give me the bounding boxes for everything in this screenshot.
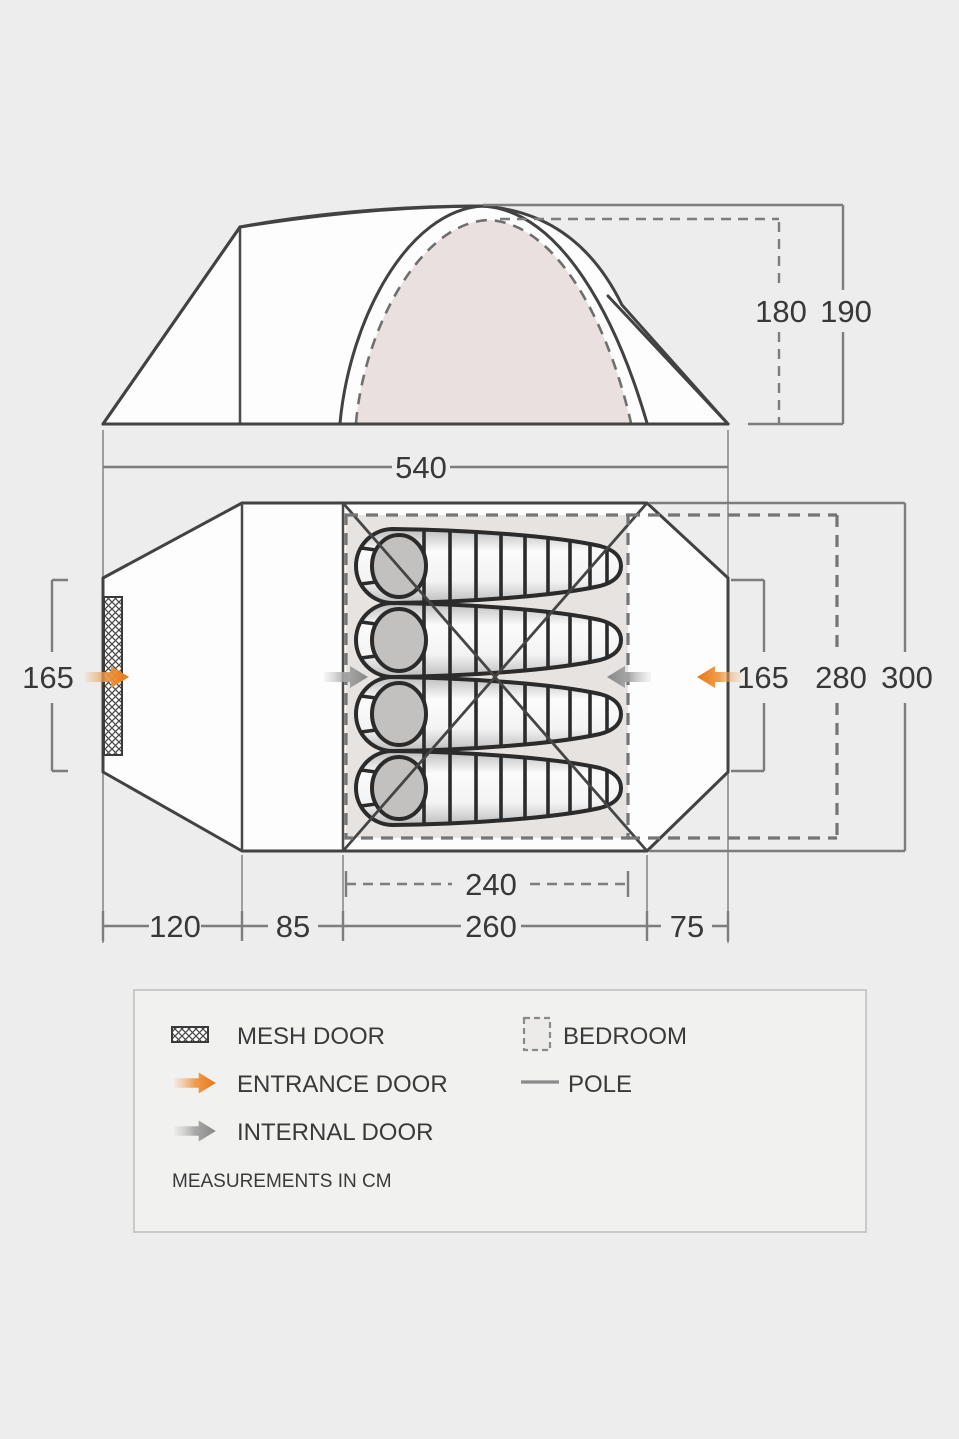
dim-label-outer-height: 190 [820,294,872,329]
legend-bedroom-label: BEDROOM [563,1023,687,1050]
floor-plan: 165 165 280 300 240 120 85 260 75 [22,503,933,944]
dim-label-inner-height: 180 [755,294,807,329]
dim-label-total-length: 540 [395,450,447,485]
mesh-door-icon [172,1027,208,1042]
legend-entrance-door-label: ENTRANCE DOOR [237,1071,448,1098]
tent-dimensions-diagram: 180 190 540 [0,0,959,1439]
dim-label-inner-length: 260 [465,909,517,944]
bedroom-length-dimension: 240 [346,867,628,902]
bottom-dimension-line: 120 85 260 75 [103,909,728,944]
dim-label-bedroom-length: 240 [465,867,517,902]
legend-mesh-door-label: MESH DOOR [237,1023,385,1050]
legend-internal-door-label: INTERNAL DOOR [237,1119,433,1146]
dim-label-rear-length: 75 [670,909,704,944]
dim-label-inner-width: 280 [815,660,867,695]
dim-label-porch-length: 120 [149,909,201,944]
diagram-svg: 180 190 540 [0,0,959,1439]
bedroom-icon [524,1018,550,1050]
legend-pole-label: POLE [568,1071,632,1098]
legend: MESH DOOR ENTRANCE DOOR INTERNAL DOOR BE… [134,990,866,1232]
dim-label-right-door-width: 165 [737,660,789,695]
legend-measurements-note: MEASUREMENTS IN CM [172,1171,392,1192]
dim-label-left-door-width: 165 [22,660,74,695]
dim-label-total-width: 300 [881,660,933,695]
dim-label-middle-length: 85 [276,909,310,944]
